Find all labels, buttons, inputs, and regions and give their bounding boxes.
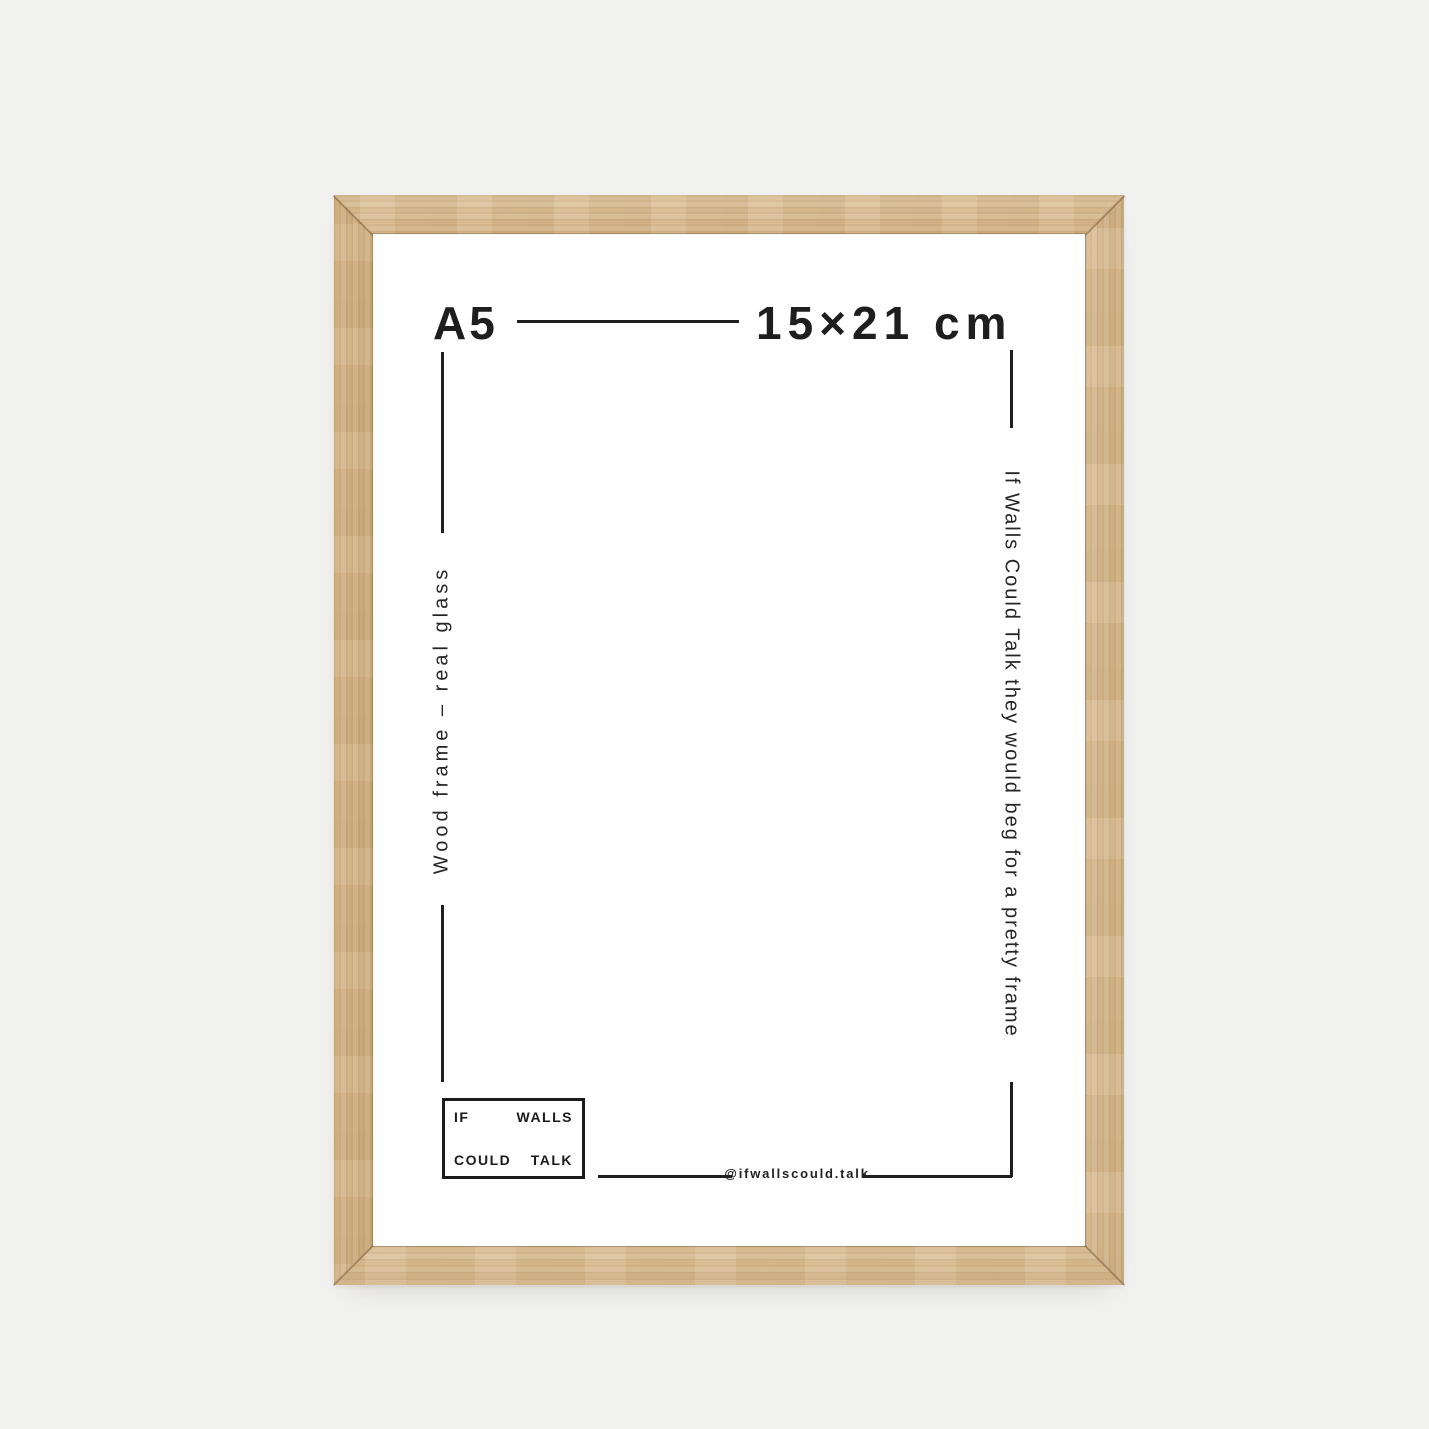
- logo-word-talk: TALK: [531, 1153, 573, 1167]
- frame-bottom-bar: [334, 1246, 1124, 1285]
- frame-top-bar: [334, 195, 1124, 234]
- tagline-note: If Walls Could Talk they would beg for a…: [1000, 470, 1023, 1037]
- frame-right-bar: [1085, 195, 1124, 1285]
- size-label: A5: [433, 300, 498, 346]
- rule-right-lower: [1010, 1082, 1013, 1177]
- logo-word-if: IF: [454, 1110, 469, 1124]
- rule-left-lower: [441, 905, 444, 1082]
- rule-top-connector: [517, 320, 739, 323]
- rule-bottom-left: [598, 1175, 732, 1178]
- logo-word-walls: WALLS: [517, 1110, 574, 1124]
- rule-right-upper: [1010, 350, 1013, 428]
- product-photo-stage: A5 15×21 cm Wood frame – real glass If W…: [0, 0, 1429, 1429]
- logo-box: IF WALLS COULD TALK: [442, 1098, 585, 1179]
- material-note: Wood frame – real glass: [431, 566, 454, 874]
- rule-bottom-right: [862, 1175, 1012, 1178]
- social-handle: @ifwallscould.talk: [724, 1166, 870, 1181]
- wooden-frame: A5 15×21 cm Wood frame – real glass If W…: [334, 195, 1124, 1285]
- rule-left-upper: [441, 352, 444, 533]
- paper-insert: A5 15×21 cm Wood frame – real glass If W…: [373, 234, 1085, 1246]
- dimensions-label: 15×21 cm: [756, 300, 1012, 346]
- frame-left-bar: [334, 195, 373, 1285]
- logo-word-could: COULD: [454, 1153, 511, 1167]
